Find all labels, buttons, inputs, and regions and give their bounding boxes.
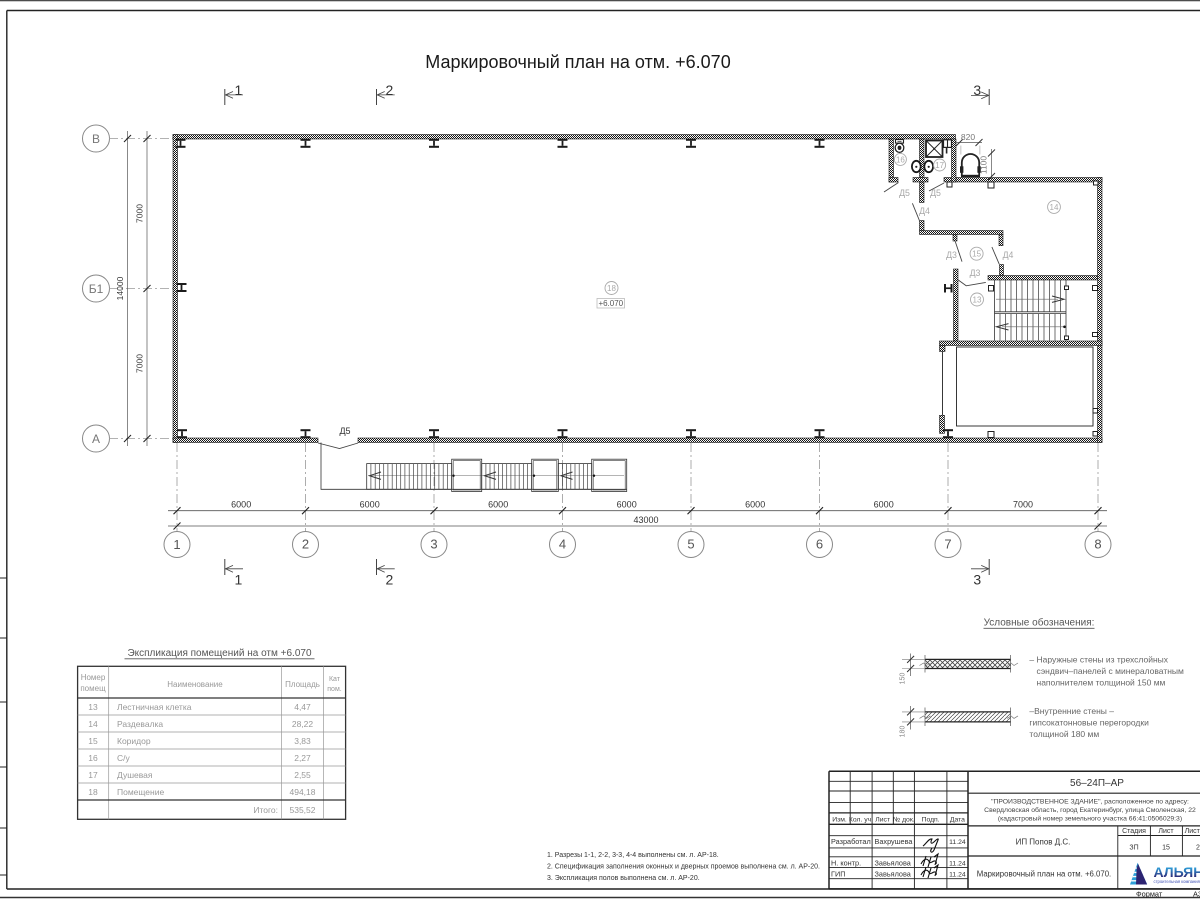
svg-text:В: В [92, 132, 100, 146]
svg-text:13: 13 [973, 296, 982, 305]
svg-text:7: 7 [944, 537, 951, 552]
svg-text:Лист: Лист [875, 817, 890, 824]
svg-text:17: 17 [88, 770, 98, 780]
svg-text:18: 18 [88, 787, 98, 797]
svg-text:16: 16 [896, 155, 905, 164]
svg-text:помещ: помещ [80, 684, 106, 693]
svg-text:17: 17 [935, 161, 944, 170]
svg-text:Д5: Д5 [930, 188, 941, 198]
svg-text:8: 8 [1094, 537, 1101, 552]
svg-text:Итого:: Итого: [253, 805, 278, 815]
svg-text:6000: 6000 [488, 500, 508, 510]
svg-text:ЗП: ЗП [1129, 845, 1138, 852]
svg-text:Кат: Кат [329, 676, 341, 683]
svg-text:3. Экспликация полов выполнена: 3. Экспликация полов выполнена см. л. АР… [547, 875, 700, 882]
svg-text:Лист: Лист [1158, 828, 1174, 835]
svg-text:28,22: 28,22 [292, 719, 314, 729]
svg-text:2: 2 [302, 537, 309, 552]
svg-text:15: 15 [88, 736, 98, 746]
svg-text:толщиной 180 мм: толщиной 180 мм [1029, 729, 1099, 739]
svg-text:С/у: С/у [117, 753, 131, 763]
svg-text:5: 5 [687, 537, 694, 552]
svg-text:6000: 6000 [745, 500, 765, 510]
svg-text:Стадия: Стадия [1122, 828, 1146, 835]
svg-text:13: 13 [88, 702, 98, 712]
svg-text:Завьялова: Завьялова [875, 869, 912, 878]
svg-text:3: 3 [430, 537, 437, 552]
svg-text:3: 3 [973, 572, 981, 588]
svg-text:Коридор: Коридор [117, 736, 151, 746]
svg-text:15: 15 [1162, 845, 1170, 852]
svg-text:14: 14 [88, 719, 98, 729]
svg-text:6000: 6000 [231, 500, 251, 510]
svg-text:пом.: пом. [327, 686, 341, 693]
svg-text:Д4: Д4 [919, 206, 930, 216]
svg-text:15: 15 [972, 250, 981, 259]
svg-text:Б1: Б1 [89, 282, 104, 296]
svg-text:Д5: Д5 [339, 426, 350, 436]
svg-text:№ док.: № док. [893, 817, 915, 824]
svg-text:1: 1 [173, 537, 180, 552]
svg-text:Изм.: Изм. [832, 817, 847, 824]
svg-text:Д3: Д3 [970, 268, 981, 278]
svg-text:–Внутренние стены –: –Внутренние стены – [1029, 706, 1114, 716]
svg-text:3,83: 3,83 [294, 736, 311, 746]
svg-text:6000: 6000 [874, 500, 894, 510]
svg-text:Помещение: Помещение [117, 787, 164, 797]
svg-text:ГИП: ГИП [831, 869, 845, 878]
svg-text:Свердловская область, город Ек: Свердловская область, город Екатеринбург… [984, 806, 1196, 814]
svg-text:6000: 6000 [617, 500, 637, 510]
svg-text:Кол. уч.: Кол. уч. [849, 817, 873, 824]
svg-text:1: 1 [235, 82, 243, 98]
svg-text:2: 2 [386, 572, 394, 588]
svg-text:2,55: 2,55 [294, 770, 311, 780]
svg-text:1: 1 [235, 572, 243, 588]
svg-text:180: 180 [900, 726, 907, 738]
svg-text:7000: 7000 [135, 204, 145, 223]
svg-text:3: 3 [973, 82, 981, 98]
svg-text:2: 2 [386, 82, 394, 98]
svg-text:Раздевалка: Раздевалка [117, 719, 163, 729]
svg-text:56–24П–АР: 56–24П–АР [1070, 778, 1124, 789]
svg-text:гипсокатонновые перегородки: гипсокатонновые перегородки [1029, 718, 1149, 728]
svg-text:18: 18 [607, 284, 616, 293]
svg-text:ИП Попов Д.С.: ИП Попов Д.С. [1016, 838, 1071, 847]
svg-text:А3: А3 [1193, 890, 1200, 899]
svg-text:Условные обозначения:: Условные обозначения: [984, 617, 1095, 629]
svg-text:Формат: Формат [1136, 890, 1163, 899]
svg-text:11.24: 11.24 [949, 871, 966, 878]
svg-text:"ПРОИЗВОДСТВЕННОЕ ЗДАНИЕ", рас: "ПРОИЗВОДСТВЕННОЕ ЗДАНИЕ", расположенное… [991, 799, 1189, 806]
svg-text:6: 6 [816, 537, 823, 552]
svg-text:Д4: Д4 [1003, 250, 1014, 260]
svg-text:2. Спецификация заполнения око: 2. Спецификация заполнения оконных и две… [547, 864, 820, 871]
svg-text:2: 2 [1196, 845, 1200, 852]
svg-text:1. Разрезы 1-1, 2-2, 3-3, 4-4: 1. Разрезы 1-1, 2-2, 3-3, 4-4 выполнены … [547, 852, 719, 859]
svg-text:Вахрушева: Вахрушева [875, 837, 914, 846]
svg-text:Д3: Д3 [946, 250, 957, 260]
svg-text:11.24: 11.24 [949, 839, 966, 846]
svg-text:4,47: 4,47 [294, 702, 311, 712]
svg-text:11.24: 11.24 [949, 860, 966, 867]
svg-text:Номер: Номер [81, 673, 106, 682]
svg-text:43000: 43000 [633, 515, 658, 525]
svg-text:7000: 7000 [1013, 500, 1033, 510]
svg-text:Маркировочный план на отм. +6.: Маркировочный план на отм. +6.070. [977, 870, 1111, 879]
svg-text:Подп.: Подп. [922, 817, 940, 824]
svg-text:494,18: 494,18 [290, 787, 316, 797]
svg-text:820: 820 [961, 132, 975, 142]
svg-text:7000: 7000 [135, 354, 145, 373]
svg-text:Листов: Листов [1185, 828, 1200, 835]
svg-text:1100: 1100 [978, 156, 988, 175]
svg-text:Дата: Дата [950, 817, 965, 824]
svg-text:14: 14 [1050, 203, 1059, 212]
svg-text:Лестничная клетка: Лестничная клетка [117, 702, 192, 712]
svg-text:Д5: Д5 [899, 188, 910, 198]
svg-text:6000: 6000 [360, 500, 380, 510]
svg-text:Площадь: Площадь [285, 680, 320, 689]
svg-text:2,27: 2,27 [294, 753, 311, 763]
svg-text:Наименование: Наименование [167, 680, 223, 689]
svg-text:Разработал: Разработал [831, 837, 871, 846]
svg-text:– Наружные стены из трехслойны: – Наружные стены из трехслойных [1029, 655, 1168, 665]
svg-text:А: А [92, 432, 100, 446]
svg-text:16: 16 [88, 753, 98, 763]
svg-text:сэндвич–панелей с минераловатн: сэндвич–панелей с минераловатным [1037, 666, 1185, 676]
svg-text:Душевая: Душевая [117, 770, 153, 780]
svg-text:535,52: 535,52 [290, 805, 316, 815]
svg-text:(кадастровый номер земельного: (кадастровый номер земельного участка 66… [998, 815, 1182, 823]
svg-text:4: 4 [559, 537, 566, 552]
svg-text:наполнителем толщиной 150 мм: наполнителем толщиной 150 мм [1037, 678, 1166, 688]
svg-text:14000: 14000 [115, 276, 125, 300]
svg-text:строительная компания: строительная компания [1154, 879, 1200, 884]
svg-text:АЛЬЯНС: АЛЬЯНС [1154, 864, 1200, 880]
svg-text:Экспликация помещений на отм +: Экспликация помещений на отм +6.070 [127, 648, 311, 659]
svg-text:Н. контр.: Н. контр. [831, 858, 861, 867]
svg-text:Маркировочный план на отм. +6.: Маркировочный план на отм. +6.070 [425, 52, 730, 72]
svg-text:Завьялова: Завьялова [875, 858, 912, 867]
svg-text:+6.070: +6.070 [598, 299, 623, 308]
svg-text:150: 150 [900, 673, 907, 685]
